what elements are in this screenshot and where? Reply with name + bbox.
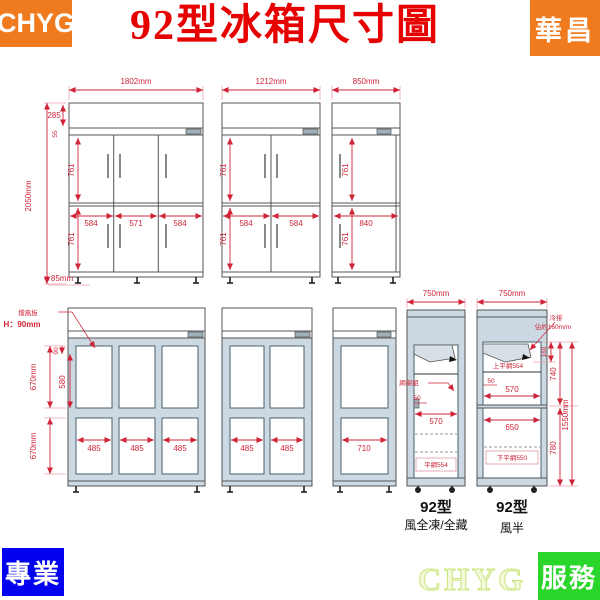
dim-window-width-2: 485 (130, 444, 144, 453)
caster-wheel (487, 487, 493, 493)
dim-upper-door-height: 761 (67, 163, 76, 177)
variant-label: 風半 (500, 521, 524, 535)
dim-door-width-1: 840 (359, 219, 373, 228)
front-view-six-door: 1802mm 2050mm 285 55 761 761 584 571 584 (24, 77, 203, 285)
bottom-shelf-label: 平網554 (424, 460, 448, 469)
dim-window-width-1: 485 (240, 444, 254, 453)
dim-shelf-width: 570 (429, 417, 443, 426)
glass-view-two-window: 710 (333, 308, 396, 492)
glass-view-four-window: 485 485 (222, 308, 312, 492)
dim-window-width-1: 710 (357, 444, 371, 453)
dim-door-width-1: 584 (84, 219, 98, 228)
cooler-label: 冷排 (550, 313, 564, 322)
dim-inner-window: 580 (58, 375, 67, 389)
dim-width: 1802mm (120, 77, 151, 86)
front-view-four-door: 1212mm 761 761 584 584 (219, 77, 320, 283)
dim-door-width-2: 584 (289, 219, 303, 228)
dim-inner-top: 90 (53, 347, 60, 355)
control-panel (377, 129, 391, 134)
dim-gap: 50 (487, 378, 495, 385)
dim-lower-door-height: 761 (341, 232, 350, 246)
dim-width: 850mm (353, 77, 380, 86)
dim-width: 750mm (423, 289, 450, 298)
dim-cooler-height: 160 (541, 346, 548, 357)
dim-door-width-3: 584 (173, 219, 187, 228)
glass-view-six-window: 擋風板 H：90mm 670mm 670mm 90 580 485 485 48… (4, 308, 205, 492)
diagram-svg: 1802mm 2050mm 285 55 761 761 584 571 584 (0, 0, 600, 600)
dim-upper-door-height: 761 (341, 163, 350, 177)
dim-lower-door-height: 761 (219, 232, 228, 246)
dim-upper-door-height: 761 (219, 163, 228, 177)
dim-door-width-1: 584 (239, 219, 253, 228)
shelf-assembly-label: 網架組 (399, 378, 419, 387)
dim-door-width-2: 571 (129, 219, 143, 228)
brand-badge-top-right: 華昌 (530, 0, 600, 56)
brand-watermark: CHYG (418, 561, 526, 598)
dim-width: 750mm (499, 289, 526, 298)
control-panel (186, 129, 201, 134)
baffle-label: 擋風板 (18, 308, 38, 317)
front-view-two-door: 850mm 761 761 840 (332, 77, 400, 283)
dim-total-height: 1550mm (561, 399, 570, 430)
cooler-note: 佔約160m/m (535, 322, 571, 331)
dim-lower-section: 670mm (29, 432, 38, 459)
model-label: 92型 (496, 498, 528, 516)
page-title: 92型冰箱尺寸圖 (90, 0, 480, 52)
dim-lower-width: 650 (505, 423, 519, 432)
dim-width: 1212mm (255, 77, 286, 86)
dim-shelf-width: 570 (505, 385, 519, 394)
variant-label: 風全凍/全藏 (404, 517, 467, 532)
refrigerator-dimension-sheet: 1802mm 2050mm 285 55 761 761 584 571 584 (0, 0, 600, 600)
side-view-full: 750mm 網架組 50 570 平網554 92型 風全凍/全藏 (399, 289, 467, 532)
model-label: 92型 (420, 498, 452, 516)
dim-leg-height: 85mm (51, 274, 74, 283)
footer-badge-left: 專業 (2, 548, 64, 596)
dim-window-width-3: 485 (173, 444, 187, 453)
brand-badge-top-left: CHYG (0, 0, 72, 47)
dim-lower-door-height: 761 (67, 232, 76, 246)
dim-upper-height: 740 (549, 367, 558, 381)
lower-shelf-label: 下平網550 (497, 453, 528, 462)
dim-window-width-1: 485 (87, 444, 101, 453)
baffle-height-label: H：90mm (4, 320, 41, 329)
control-panel (377, 332, 391, 337)
dim-upper-section: 670mm (29, 363, 38, 390)
dim-window-width-2: 485 (280, 444, 294, 453)
control-panel (188, 332, 203, 337)
caster-wheel (449, 487, 455, 493)
dim-strip: 55 (52, 130, 59, 138)
dim-top-section: 285 (47, 111, 61, 120)
side-view-half: 750mm 冷排 佔約160m/m 上平網554 50 570 650 下平網5… (477, 289, 578, 535)
caster-wheel (531, 487, 537, 493)
dim-overall-height: 2050mm (24, 180, 33, 211)
control-panel (295, 332, 310, 337)
caster-wheel (415, 487, 421, 493)
control-panel (303, 129, 318, 134)
footer-badge-right: 服務 (538, 552, 600, 600)
upper-shelf-label: 上平網554 (493, 361, 524, 370)
dim-lower-height: 780 (549, 441, 558, 455)
dim-gap: 50 (413, 395, 421, 402)
